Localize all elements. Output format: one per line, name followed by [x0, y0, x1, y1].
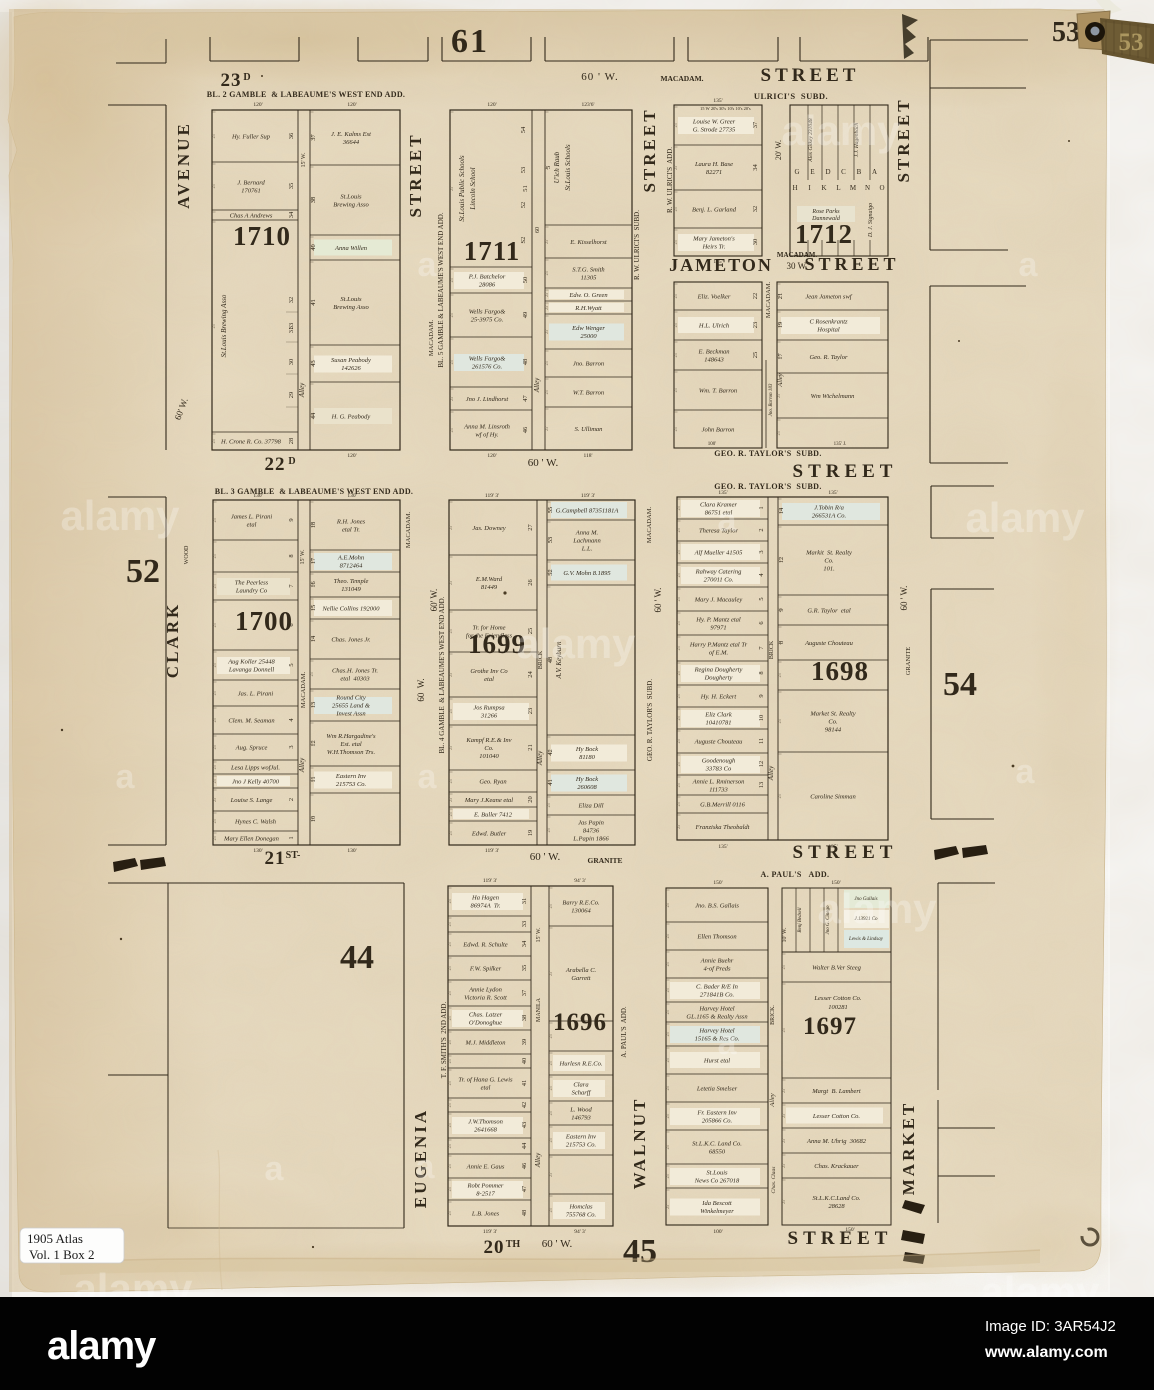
svg-text:Benj Bedsell: Benj Bedsell — [798, 907, 803, 933]
svg-text:etal Tr.: etal Tr. — [342, 527, 360, 534]
svg-text:25': 25' — [665, 961, 670, 966]
svg-text:Clem. M. Seaman: Clem. M. Seaman — [228, 718, 274, 725]
svg-text:W.H.Thomson Trs.: W.H.Thomson Trs. — [327, 749, 376, 756]
svg-text:Aug. Spruce: Aug. Spruce — [235, 745, 268, 752]
svg-text:Harvey Hotel: Harvey Hotel — [698, 1006, 734, 1013]
svg-text:260608: 260608 — [577, 784, 597, 791]
svg-text:25': 25' — [676, 505, 681, 510]
svg-text:Jno. Barron: Jno. Barron — [573, 361, 604, 368]
svg-text:50: 50 — [522, 277, 529, 284]
svg-text:37: 37 — [521, 989, 528, 996]
svg-text:O'Donoghue: O'Donoghue — [469, 1020, 502, 1027]
svg-text:48: 48 — [521, 1210, 528, 1217]
svg-text:25': 25' — [211, 323, 216, 328]
svg-text:142626: 142626 — [341, 365, 361, 372]
svg-text:25000: 25000 — [580, 333, 597, 340]
svg-text:48: 48 — [522, 359, 529, 366]
svg-text:BL. 2 GAMBLE & LABEAUME'S WES: BL. 2 GAMBLE & LABEAUME'S WEST END ADD. — [207, 90, 405, 99]
svg-text:81449: 81449 — [481, 584, 498, 591]
svg-text:a: a — [418, 246, 438, 284]
svg-text:131049: 131049 — [341, 586, 361, 593]
svg-text:Dougherty: Dougherty — [704, 675, 733, 682]
svg-text:60 ' W.: 60 ' W. — [542, 1238, 573, 1250]
svg-text:25: 25 — [752, 352, 759, 359]
svg-text:BL. 3 GAMBLE & LABEAUME'S WES: BL. 3 GAMBLE & LABEAUME'S WEST END ADD. — [215, 487, 413, 496]
svg-text:25': 25' — [673, 387, 678, 392]
svg-text:Edw. O. Green: Edw. O. Green — [568, 292, 607, 299]
svg-text:Anna M. Uhrig 30682: Anna M. Uhrig 30682 — [806, 1138, 867, 1145]
svg-text:20: 20 — [527, 796, 534, 803]
svg-text:alamy: alamy — [965, 494, 1085, 541]
svg-text:25': 25' — [309, 816, 314, 821]
svg-text:C: C — [841, 168, 846, 176]
svg-text:25': 25' — [665, 1085, 670, 1090]
svg-text:2: 2 — [288, 798, 295, 801]
svg-text:35: 35 — [521, 965, 528, 972]
svg-text:GEO. R. TAYLOR'S SUBD.: GEO. R. TAYLOR'S SUBD. — [714, 449, 822, 458]
svg-text:Winkelmeyer: Winkelmeyer — [700, 1208, 734, 1215]
svg-text:25': 25' — [447, 1015, 452, 1020]
svg-text:25': 25' — [212, 744, 217, 749]
svg-text:119' 3': 119' 3' — [485, 493, 499, 499]
svg-text:120': 120' — [347, 453, 356, 459]
svg-text:Grothe Inv Co: Grothe Inv Co — [470, 668, 508, 675]
svg-text:Alley: Alley — [298, 757, 306, 773]
svg-text:25': 25' — [777, 557, 782, 562]
svg-text:25': 25' — [309, 361, 314, 366]
svg-text:of E.M.: of E.M. — [709, 650, 729, 657]
svg-text:25': 25' — [673, 426, 678, 431]
svg-text:Eastern Inv: Eastern Inv — [335, 773, 366, 780]
svg-text:MACADAM.: MACADAM. — [765, 281, 772, 318]
svg-text:St.L.K.C.Land Co.: St.L.K.C.Land Co. — [812, 1195, 860, 1202]
svg-text:25': 25' — [665, 1173, 670, 1178]
svg-text:46: 46 — [522, 426, 529, 433]
svg-text:25': 25' — [665, 1144, 670, 1149]
svg-text:35: 35 — [288, 183, 295, 190]
svg-text:53: 53 — [1052, 17, 1080, 48]
svg-text:Alley: Alley — [298, 382, 306, 398]
svg-text:25': 25' — [449, 359, 454, 364]
svg-text:41: 41 — [521, 1080, 528, 1087]
svg-text:39: 39 — [521, 1039, 528, 1046]
svg-text:Alley: Alley — [536, 750, 544, 766]
svg-text:25': 25' — [448, 778, 453, 783]
svg-text:25': 25' — [776, 354, 781, 359]
svg-text:a: a — [1019, 246, 1039, 284]
svg-text:25': 25' — [448, 745, 453, 750]
svg-text:Ellen Thomson: Ellen Thomson — [696, 934, 736, 941]
svg-text:25': 25' — [665, 1009, 670, 1014]
svg-text:10410781: 10410781 — [706, 720, 732, 727]
svg-text:54: 54 — [943, 666, 977, 703]
svg-text:13: 13 — [758, 782, 765, 789]
svg-text:Walter B.Ver Steeg: Walter B.Ver Steeg — [812, 965, 861, 972]
svg-text:25': 25' — [777, 640, 782, 645]
svg-text:Eliza Dill: Eliza Dill — [577, 803, 603, 810]
svg-text:Edwd. Butler: Edwd. Butler — [471, 831, 507, 838]
svg-text:25': 25' — [309, 300, 314, 305]
svg-text:135': 135' — [828, 490, 837, 496]
svg-text:94' 3': 94' 3' — [574, 878, 586, 884]
svg-text:44: 44 — [521, 1142, 528, 1149]
svg-text:a: a — [416, 1148, 436, 1186]
svg-text:25': 25' — [546, 537, 551, 542]
svg-text:120': 120' — [253, 102, 262, 108]
svg-text:Ha Hagen: Ha Hagen — [471, 895, 499, 902]
svg-text:25': 25' — [781, 1027, 786, 1032]
svg-text:Louise W. Greer: Louise W. Greer — [692, 119, 736, 126]
svg-text:James L. Pirani: James L. Pirani — [231, 514, 273, 521]
svg-text:ULRICI'S SUBD.: ULRICI'S SUBD. — [754, 91, 828, 101]
svg-text:34: 34 — [288, 211, 295, 218]
svg-text:60 ' W.: 60 ' W. — [581, 71, 618, 83]
svg-text:G.R. Taylor etal: G.R. Taylor etal — [807, 608, 850, 615]
svg-text:25': 25' — [776, 293, 781, 298]
svg-text:Hy Bock: Hy Bock — [575, 746, 598, 753]
svg-text:Susan Peabody: Susan Peabody — [331, 357, 371, 364]
svg-text:25': 25' — [676, 572, 681, 577]
svg-text:alamy: alamy — [47, 1324, 157, 1368]
svg-text:8-2517: 8-2517 — [476, 1191, 495, 1198]
svg-text:L.B. Jones: L.B. Jones — [471, 1211, 500, 1218]
svg-text:135': 135' — [713, 98, 722, 104]
svg-text:Wm. T. Barron: Wm. T. Barron — [699, 388, 737, 395]
svg-text:25': 25' — [447, 1163, 452, 1168]
svg-text:L: L — [836, 184, 840, 192]
svg-text:Auguste Chouteau: Auguste Chouteau — [804, 640, 854, 647]
svg-text:32: 32 — [752, 206, 759, 213]
svg-text:Tr. of Hana G. Lewis: Tr. of Hana G. Lewis — [458, 1077, 513, 1084]
svg-text:P.J. Batchelor: P.J. Batchelor — [468, 274, 506, 281]
svg-text:25': 25' — [544, 292, 549, 297]
svg-text:12: 12 — [758, 761, 765, 768]
svg-text:Hospital: Hospital — [816, 327, 840, 334]
svg-text:271841B Co.: 271841B Co. — [700, 992, 735, 999]
svg-text:Alley: Alley — [767, 765, 775, 781]
svg-text:Lavanga Donnell: Lavanga Donnell — [228, 667, 275, 674]
svg-text:25': 25' — [676, 824, 681, 829]
svg-text:Hy Bock: Hy Bock — [575, 776, 598, 783]
svg-text:148643: 148643 — [704, 357, 724, 364]
svg-text:for the Friendless: for the Friendless — [466, 633, 513, 640]
svg-text:25': 25' — [212, 622, 217, 627]
svg-text:33783 Co: 33783 Co — [705, 766, 732, 773]
svg-text:STREET: STREET — [788, 1228, 893, 1249]
svg-text:270011 Co.: 270011 Co. — [704, 577, 734, 584]
svg-text:Ida Bescott: Ida Bescott — [701, 1200, 732, 1207]
svg-text:101040: 101040 — [479, 753, 499, 760]
svg-text:Eastern Inv: Eastern Inv — [565, 1134, 596, 1141]
svg-text:Lewis & Lindsay: Lewis & Lindsay — [848, 937, 884, 942]
svg-text:25': 25' — [781, 1113, 786, 1118]
svg-text:Robt Pommer: Robt Pommer — [467, 1183, 504, 1190]
svg-text:25': 25' — [546, 802, 551, 807]
svg-text:25': 25' — [676, 761, 681, 766]
svg-text:Tr. for Home: Tr. for Home — [472, 625, 505, 632]
svg-text:170761: 170761 — [241, 188, 261, 195]
svg-text:25': 25' — [448, 580, 453, 585]
svg-text:Market St. Realty: Market St. Realty — [809, 711, 855, 718]
svg-text:25': 25' — [546, 750, 551, 755]
svg-text:25': 25' — [447, 965, 452, 970]
svg-text:25': 25' — [447, 990, 452, 995]
svg-text:25': 25' — [676, 620, 681, 625]
svg-text:G: G — [794, 168, 799, 176]
svg-text:St.Louis: St.Louis — [706, 1170, 728, 1177]
svg-text:Heirs Tr.: Heirs Tr. — [702, 244, 726, 251]
svg-text:130': 130' — [347, 848, 356, 854]
svg-text:25': 25' — [781, 964, 786, 969]
svg-text:25': 25' — [212, 583, 217, 588]
svg-text:Lesser Cotton Co.: Lesser Cotton Co. — [812, 1113, 861, 1120]
svg-text:Jno. B.S. Gallais: Jno. B.S. Gallais — [695, 903, 739, 910]
svg-text:130': 130' — [347, 493, 356, 499]
svg-text:25': 25' — [449, 427, 454, 432]
svg-text:Geo. Ryan: Geo. Ryan — [479, 779, 506, 786]
svg-text:Co.: Co. — [484, 745, 494, 752]
svg-text:25': 25' — [447, 1143, 452, 1148]
svg-text:34: 34 — [752, 164, 759, 171]
svg-text:Chas A Andrews: Chas A Andrews — [230, 213, 273, 220]
svg-text:47: 47 — [521, 1185, 528, 1192]
svg-text:Wm R.Hargadine's: Wm R.Hargadine's — [326, 733, 376, 740]
svg-text:1710: 1710 — [233, 221, 291, 251]
svg-text:25': 25' — [447, 1102, 452, 1107]
svg-text:S2: S2 — [520, 237, 527, 244]
svg-text:33: 33 — [521, 921, 528, 928]
svg-text:W.T. Barron: W.T. Barron — [573, 390, 604, 397]
svg-text:Hurlesn R.E.Co.: Hurlesn R.E.Co. — [559, 1061, 603, 1068]
svg-text:E.M.Ward: E.M.Ward — [475, 576, 503, 583]
svg-text:Wells Fargo&: Wells Fargo& — [469, 356, 506, 363]
svg-text:WOOD: WOOD — [184, 545, 190, 564]
svg-text:25': 25' — [447, 941, 452, 946]
svg-text:120': 120' — [347, 102, 356, 108]
svg-text:25': 25' — [309, 522, 314, 527]
svg-text:25': 25' — [548, 1085, 553, 1090]
svg-text:MARKET: MARKET — [899, 1101, 918, 1196]
svg-text:Margt B. Lambert: Margt B. Lambert — [811, 1088, 861, 1095]
svg-text:42: 42 — [521, 1102, 528, 1109]
svg-text:1: 1 — [288, 836, 295, 839]
svg-text:25': 25' — [212, 717, 217, 722]
svg-text:11305: 11305 — [581, 275, 598, 282]
svg-text:47: 47 — [522, 395, 529, 402]
svg-text:GRANITE: GRANITE — [587, 856, 622, 865]
svg-text:BL. 5 GAMBLE & LABEAUME'S WEST: BL. 5 GAMBLE & LABEAUME'S WEST END ADD. — [437, 212, 445, 367]
svg-text:R. W. ULRICI'S ADD.: R. W. ULRICI'S ADD. — [666, 147, 674, 213]
svg-text:25': 25' — [212, 517, 217, 522]
svg-text:Caroline Simman: Caroline Simman — [810, 794, 855, 801]
svg-text:Wm Wichelmann: Wm Wichelmann — [811, 393, 855, 400]
svg-text:25': 25' — [676, 801, 681, 806]
svg-text:30: 30 — [288, 359, 295, 366]
svg-text:215753 Co.: 215753 Co. — [336, 781, 367, 788]
svg-text:Jno J Kelly 40700: Jno J Kelly 40700 — [232, 779, 280, 786]
svg-text:etal: etal — [247, 522, 257, 529]
svg-text:Chas. Claas: Chas. Claas — [771, 1167, 777, 1194]
svg-text:wf of Hy.: wf of Hy. — [475, 432, 499, 439]
svg-text:L.Papin 1866: L.Papin 1866 — [572, 836, 609, 843]
svg-text:15' W.: 15' W. — [301, 152, 307, 168]
svg-text:205866 Co.: 205866 Co. — [702, 1118, 733, 1125]
svg-text:D. J. Signaigo: D. J. Signaigo — [868, 203, 874, 238]
svg-text:119' 3': 119' 3' — [581, 493, 595, 499]
svg-text:K: K — [821, 184, 826, 192]
svg-text:Anna M.: Anna M. — [575, 530, 599, 537]
svg-text:97971: 97971 — [710, 625, 726, 632]
svg-text:G.B.Merrill 0116: G.B.Merrill 0116 — [700, 802, 746, 809]
svg-text:Rahway Catering: Rahway Catering — [695, 569, 742, 576]
svg-text:St.L.K.C. Land Co.: St.L.K.C. Land Co. — [692, 1141, 742, 1148]
svg-text:J. E. Kalms Est: J. E. Kalms Est — [331, 131, 371, 138]
svg-text:2641668: 2641668 — [474, 1127, 498, 1134]
svg-text:37: 37 — [752, 121, 759, 128]
svg-text:21: 21 — [527, 744, 534, 751]
svg-text:25': 25' — [448, 830, 453, 835]
svg-text:31: 31 — [288, 327, 295, 334]
svg-text:MACADAM.: MACADAM. — [428, 319, 435, 356]
svg-text:L.L.: L.L. — [581, 546, 593, 553]
svg-text:25': 25' — [665, 1113, 670, 1118]
svg-text:The Peerless: The Peerless — [235, 580, 269, 587]
svg-text:Hy. P. Mantz etal: Hy. P. Mantz etal — [695, 617, 741, 624]
svg-text:4-of Preds: 4-of Preds — [703, 966, 730, 973]
svg-text:Brewing Asso: Brewing Asso — [333, 202, 369, 209]
svg-text:5: 5 — [758, 597, 765, 600]
svg-text:98144: 98144 — [825, 727, 842, 734]
svg-text:D: D — [288, 456, 295, 467]
svg-text:STREET: STREET — [793, 842, 898, 863]
svg-text:25655 Land &: 25655 Land & — [332, 703, 371, 710]
svg-text:B: B — [857, 168, 862, 176]
svg-text:25': 25' — [309, 197, 314, 202]
svg-text:123'6': 123'6' — [582, 102, 595, 108]
svg-text:a: a — [718, 1024, 738, 1062]
svg-text:A.E.Mohn: A.E.Mohn — [337, 555, 364, 562]
svg-text:alamy: alamy — [817, 885, 937, 932]
svg-text:9: 9 — [758, 694, 765, 697]
svg-text:Est. etal: Est. etal — [339, 741, 361, 748]
svg-text:BRICK: BRICK — [769, 640, 775, 659]
svg-text:135' J.: 135' J. — [834, 442, 847, 447]
svg-text:119' 3': 119' 3' — [483, 1229, 497, 1235]
svg-text:25': 25' — [673, 322, 678, 327]
svg-text:100': 100' — [708, 442, 717, 447]
svg-text:130064: 130064 — [571, 908, 591, 915]
svg-text:Mary Jameton's: Mary Jameton's — [692, 236, 735, 243]
svg-text:25': 25' — [544, 329, 549, 334]
svg-text:25': 25' — [676, 549, 681, 554]
svg-text:E. Buller 7412: E. Buller 7412 — [473, 812, 513, 819]
svg-text:A. PAUL'S ADD.: A. PAUL'S ADD. — [620, 1006, 628, 1058]
svg-text:JAMETON: JAMETON — [669, 255, 773, 275]
svg-text:52: 52 — [126, 553, 160, 590]
svg-text:25': 25' — [665, 1204, 670, 1209]
svg-text:S. Ulliman: S. Ulliman — [575, 426, 603, 433]
svg-text:C. Bader R/E In: C. Bader R/E In — [696, 984, 738, 991]
svg-text:Hynes C. Walsh: Hynes C. Walsh — [234, 819, 276, 826]
svg-text:25': 25' — [309, 135, 314, 140]
svg-text:10' W.: 10' W. — [782, 927, 788, 943]
svg-text:29: 29 — [288, 392, 295, 399]
svg-text:25': 25' — [777, 672, 782, 677]
svg-text:Regina Dougherty: Regina Dougherty — [694, 667, 743, 674]
svg-text:755768 Co.: 755768 Co. — [566, 1212, 597, 1219]
svg-text:25': 25' — [676, 738, 681, 743]
svg-text:Annie L. Rminerson: Annie L. Rminerson — [692, 779, 745, 786]
svg-text:R.H.Wyatt: R.H.Wyatt — [574, 305, 602, 312]
svg-text:25': 25' — [544, 305, 549, 310]
svg-text:19: 19 — [527, 830, 534, 837]
svg-text:Image ID: 3AR54J2: Image ID: 3AR54J2 — [985, 1318, 1116, 1335]
svg-text:a: a — [718, 501, 738, 539]
svg-text:25': 25' — [449, 186, 454, 191]
svg-text:Round City: Round City — [335, 695, 366, 702]
svg-text:120': 120' — [487, 453, 496, 459]
svg-text:Mary Ellen Donegan: Mary Ellen Donegan — [223, 836, 279, 843]
svg-text:60 W.: 60 W. — [416, 678, 426, 701]
svg-text:25': 25' — [781, 1163, 786, 1168]
svg-text:Clara: Clara — [573, 1082, 588, 1089]
svg-text:MACADAM.: MACADAM. — [300, 671, 307, 708]
svg-text:Jno J. Lindhorst: Jno J. Lindhorst — [466, 396, 509, 403]
svg-text:25': 25' — [665, 933, 670, 938]
svg-text:alamy: alamy — [60, 492, 180, 539]
svg-text:25': 25' — [448, 708, 453, 713]
svg-text:Rose Parks: Rose Parks — [811, 209, 840, 215]
svg-text:100': 100' — [713, 1229, 722, 1235]
svg-text:Aug Koller 25448: Aug Koller 25448 — [227, 659, 275, 666]
svg-text:25': 25' — [309, 777, 314, 782]
svg-text:etal: etal — [484, 676, 494, 683]
svg-text:Invest Assn: Invest Assn — [335, 711, 365, 718]
svg-text:34: 34 — [521, 940, 528, 947]
svg-text:Victoria R. Scott: Victoria R. Scott — [464, 995, 507, 1002]
svg-text:C Rosenkrantz: C Rosenkrantz — [809, 319, 848, 326]
svg-text:25': 25' — [665, 1031, 670, 1036]
svg-text:25': 25' — [676, 693, 681, 698]
svg-text:25': 25' — [449, 277, 454, 282]
svg-text:GRANITE: GRANITE — [905, 647, 912, 676]
svg-text:25': 25' — [548, 971, 553, 976]
svg-text:25': 25' — [447, 1210, 452, 1215]
svg-text:D: D — [243, 72, 250, 83]
svg-text:Hy. H. Eckert: Hy. H. Eckert — [700, 694, 737, 701]
svg-text:25': 25' — [211, 133, 216, 138]
svg-text:25': 25' — [676, 715, 681, 720]
svg-text:25': 25' — [448, 628, 453, 633]
svg-text:Jos Rumpsa: Jos Rumpsa — [473, 705, 504, 712]
svg-text:130': 130' — [253, 848, 262, 854]
svg-text:94' 3': 94' 3' — [574, 1229, 586, 1235]
svg-text:120': 120' — [487, 102, 496, 108]
svg-text:Goodenough: Goodenough — [702, 758, 736, 765]
svg-text:3: 3 — [288, 745, 295, 748]
svg-text:25': 25' — [665, 987, 670, 992]
svg-text:25': 25' — [309, 245, 314, 250]
svg-text:a: a — [116, 758, 136, 796]
svg-text:5: 5 — [288, 663, 295, 666]
svg-text:1700: 1700 — [235, 606, 293, 636]
svg-text:Co.: Co. — [828, 719, 838, 726]
svg-text:215753 Co.: 215753 Co. — [566, 1142, 597, 1149]
svg-text:25': 25' — [449, 312, 454, 317]
svg-text:M.J. Middleton: M.J. Middleton — [465, 1040, 506, 1047]
svg-text:25': 25' — [544, 360, 549, 365]
svg-text:STREET: STREET — [761, 65, 860, 86]
